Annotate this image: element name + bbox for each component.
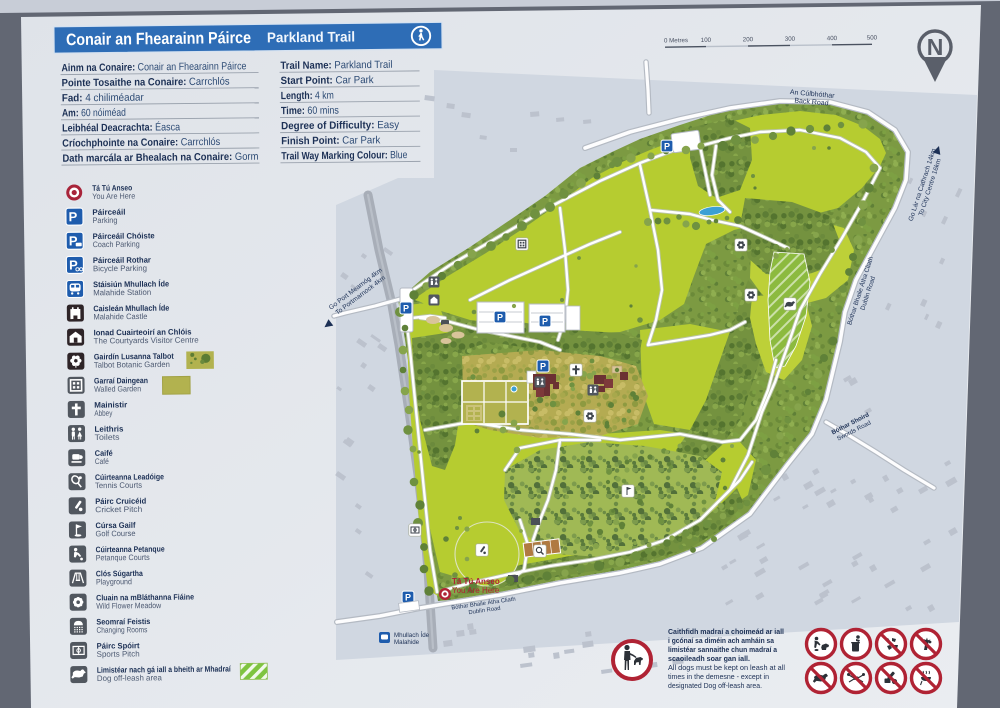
svg-text:Malahide Station: Malahide Station: [93, 288, 151, 298]
svg-text:Time: 60 mins: Time: 60 mins: [281, 105, 339, 118]
svg-text:Coach Parking: Coach Parking: [93, 240, 140, 249]
svg-text:N: N: [927, 34, 944, 60]
svg-text:P: P: [542, 317, 548, 327]
svg-text:Toilets: Toilets: [95, 433, 120, 442]
svg-text:P: P: [69, 257, 78, 272]
svg-text:500: 500: [867, 34, 878, 41]
svg-text:Caithfidh madraí a choimeád ar: Caithfidh madraí a choimeád ar iall: [668, 627, 784, 636]
svg-text:You Are Here: You Are Here: [92, 192, 136, 201]
svg-text:Pointe Tosaithe na Conaire: Ca: Pointe Tosaithe na Conaire: Carrchlós: [62, 76, 230, 90]
svg-text:Leibhéal Deacrachta: Éasca: Leibhéal Deacrachta: Éasca: [62, 120, 180, 134]
svg-text:P: P: [497, 313, 503, 323]
svg-text:Mhullach Íde: Mhullach Íde: [394, 632, 430, 639]
svg-text:0 Metres: 0 Metres: [664, 37, 688, 44]
svg-text:Fad: 4 chiliméadar: Fad: 4 chiliméadar: [62, 92, 145, 105]
svg-text:Am: 60 nóiméad: Am: 60 nóiméad: [62, 107, 126, 120]
svg-text:Trail Way Marking Colour: Blue: Trail Way Marking Colour: Blue: [281, 149, 407, 162]
svg-text:Start Point: Car Park: Start Point: Car Park: [281, 74, 375, 87]
svg-text:100: 100: [701, 37, 712, 44]
svg-text:Conair an Fhearainn Páirce: Conair an Fhearainn Páirce: [66, 29, 251, 49]
svg-text:Tá Tú Anseo: Tá Tú Anseo: [452, 577, 500, 586]
svg-text:The Courtyards Visitor Centre: The Courtyards Visitor Centre: [94, 336, 200, 346]
svg-text:Abbey: Abbey: [94, 409, 112, 418]
svg-text:Malahide Castle: Malahide Castle: [93, 312, 148, 322]
svg-text:Ainm na Conaire: Conair an Fhe: Ainm na Conaire: Conair an Fhearainn Pái…: [61, 60, 246, 74]
svg-text:Degree of Difficulty: Easy: Degree of Difficulty: Easy: [281, 119, 400, 132]
svg-text:P: P: [540, 362, 546, 372]
svg-text:Sports Pitch: Sports Pitch: [97, 649, 140, 658]
svg-text:P: P: [403, 304, 409, 314]
svg-text:Bicycle Parking: Bicycle Parking: [93, 264, 147, 274]
svg-text:Dog off-leash area: Dog off-leash area: [97, 673, 163, 683]
svg-text:times in the demesne - except: times in the demesne - except in: [668, 672, 769, 681]
svg-text:P: P: [664, 142, 670, 152]
svg-text:Malahide: Malahide: [394, 639, 420, 646]
svg-text:Parkland Trail: Parkland Trail: [267, 29, 355, 46]
svg-text:You Are Here: You Are Here: [452, 586, 500, 595]
svg-text:Changing Rooms: Changing Rooms: [96, 625, 147, 634]
svg-text:Walled Garden: Walled Garden: [94, 384, 141, 393]
svg-text:All dogs must be kept on leash: All dogs must be kept on leash at all: [668, 663, 785, 672]
svg-text:400: 400: [827, 35, 838, 42]
svg-text:Café: Café: [95, 457, 110, 466]
svg-text:Tennis Courts: Tennis Courts: [95, 481, 142, 490]
svg-text:Cricket Pitch: Cricket Pitch: [95, 505, 142, 514]
svg-text:P: P: [405, 593, 411, 603]
svg-text:200: 200: [743, 36, 754, 43]
svg-text:P: P: [69, 209, 78, 224]
svg-text:Críochphointe na Conaire: Carr: Críochphointe na Conaire: Carrchlós: [62, 136, 220, 150]
svg-text:designated Dog off-leash area.: designated Dog off-leash area.: [668, 681, 762, 690]
svg-text:limistéar sannaithe chun madra: limistéar sannaithe chun madraí a: [668, 645, 778, 654]
svg-text:Golf Course: Golf Course: [95, 529, 136, 538]
svg-text:scaoileadh soar gan iall.: scaoileadh soar gan iall.: [668, 654, 750, 663]
svg-text:Trail Name: Parkland Trail: Trail Name: Parkland Trail: [280, 59, 392, 72]
svg-text:Talbot Botanic Garden: Talbot Botanic Garden: [94, 360, 170, 370]
svg-text:300: 300: [785, 36, 796, 43]
svg-text:Parking: Parking: [92, 216, 117, 225]
svg-text:Playground: Playground: [96, 577, 132, 586]
svg-text:i gcónaí sa diméin ach amháin: i gcónaí sa diméin ach amháin sa: [668, 636, 775, 645]
svg-text:Dath marcála ar Bhealach na Co: Dath marcála ar Bhealach na Conaire: Gor…: [62, 151, 258, 165]
svg-text:Length: 4 km: Length: 4 km: [281, 90, 334, 103]
svg-text:Wild Flower Meadow: Wild Flower Meadow: [96, 601, 161, 611]
svg-text:Finish Point: Car Park: Finish Point: Car Park: [281, 134, 381, 147]
svg-text:Petanque Courts: Petanque Courts: [96, 553, 150, 563]
